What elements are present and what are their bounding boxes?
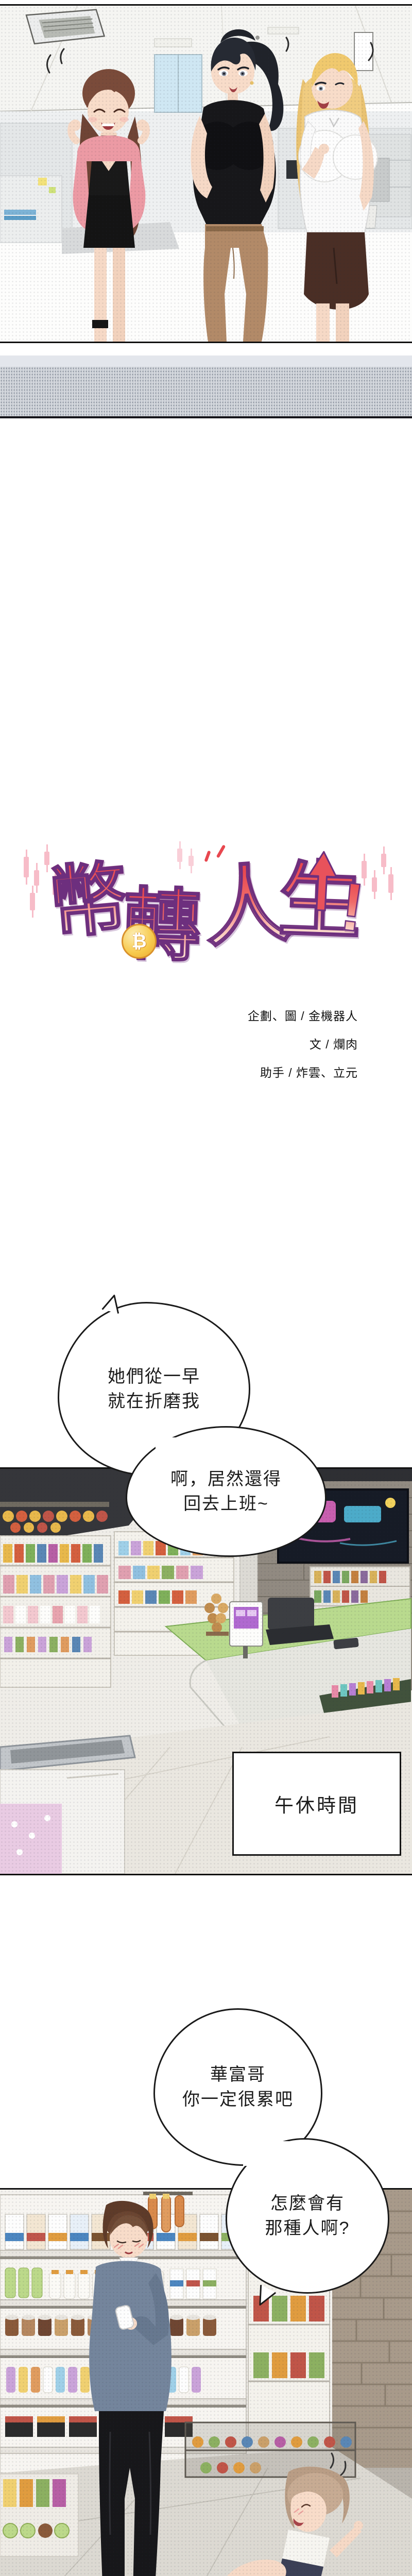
- caption-box-lunch: 午休時間: [232, 1752, 401, 1856]
- credit-line: 助手 / 炸雲、立元: [0, 1066, 358, 1079]
- speech-bubble-4-text: 怎麼會有 那種人啊?: [265, 2193, 350, 2239]
- candlestick-decoration: [24, 857, 29, 877]
- speech-bubble-2-text: 啊，居然還得 回去上班~: [170, 1469, 282, 1514]
- bubble-tail: [99, 1291, 126, 1316]
- caption-text: 午休時間: [274, 1790, 359, 1818]
- credits-block: 企劃、圖 / 金機器人 文 / 爛肉 助手 / 炸雲、立元: [0, 1009, 358, 1094]
- wire-rack: [185, 2422, 355, 2477]
- candlestick-decoration: [381, 854, 386, 867]
- earring: [250, 81, 254, 85]
- folder-stack: [4, 210, 36, 215]
- accent-dash: [216, 844, 226, 858]
- candlestick-decoration: [188, 856, 194, 866]
- title-char-1: 幣: [46, 859, 131, 944]
- candlestick-decoration: [372, 877, 377, 892]
- bubble-line: 怎麼會有: [265, 2193, 350, 2214]
- speech-bubble-1-text: 她們從一早 就在折磨我: [108, 1366, 200, 1412]
- candlestick-decoration: [30, 893, 35, 910]
- bubble-line: 回去上班~: [170, 1494, 282, 1514]
- bubble-line: 那種人啊?: [265, 2218, 350, 2239]
- ice-cream-freezer: [0, 1736, 135, 1874]
- leg-garter: [92, 320, 108, 328]
- office-scene: [0, 6, 412, 342]
- bubble-join: [156, 1437, 233, 1468]
- credit-line: 企劃、圖 / 金機器人: [0, 1009, 358, 1023]
- up-arrow-icon: [304, 846, 340, 912]
- bubble-join: [243, 2141, 310, 2166]
- lower-shelf-juices: [0, 2474, 78, 2556]
- ceiling-light: [268, 27, 299, 34]
- title-logo: 幣 轉 人 生 ! ₿: [0, 848, 412, 981]
- candlestick-decoration: [388, 874, 393, 893]
- transition-band-textured: [0, 367, 412, 418]
- ceiling-light: [154, 39, 192, 47]
- credit-line: 文 / 爛肉: [0, 1038, 358, 1051]
- bitcoin-coin-icon: ₿: [122, 924, 157, 959]
- panel-office-intro: [0, 4, 412, 343]
- wall-sign: [354, 32, 373, 71]
- candlestick-decoration: [34, 870, 39, 886]
- bubble-line: 她們從一早: [108, 1366, 200, 1387]
- bubble-line: 華富哥: [182, 2064, 294, 2085]
- candlestick-decoration: [177, 849, 182, 862]
- speech-bubble-3-text: 華富哥 你一定很累吧: [182, 2064, 294, 2110]
- sticky-note: [49, 187, 56, 193]
- coin-symbol: ₿: [131, 930, 146, 952]
- transition-strip-light: [0, 355, 412, 367]
- webtoon-page: 幣 轉 人 生 ! ₿ 企劃、圖 / 金機器人 文 / 爛肉 助手 / 炸雲、立…: [0, 0, 412, 2576]
- sticky-note: [38, 178, 47, 185]
- bubble-line: 就在折磨我: [108, 1391, 200, 1412]
- bubble-line: 啊，居然還得: [170, 1469, 282, 1489]
- bubble-line: 你一定很累吧: [182, 2089, 294, 2110]
